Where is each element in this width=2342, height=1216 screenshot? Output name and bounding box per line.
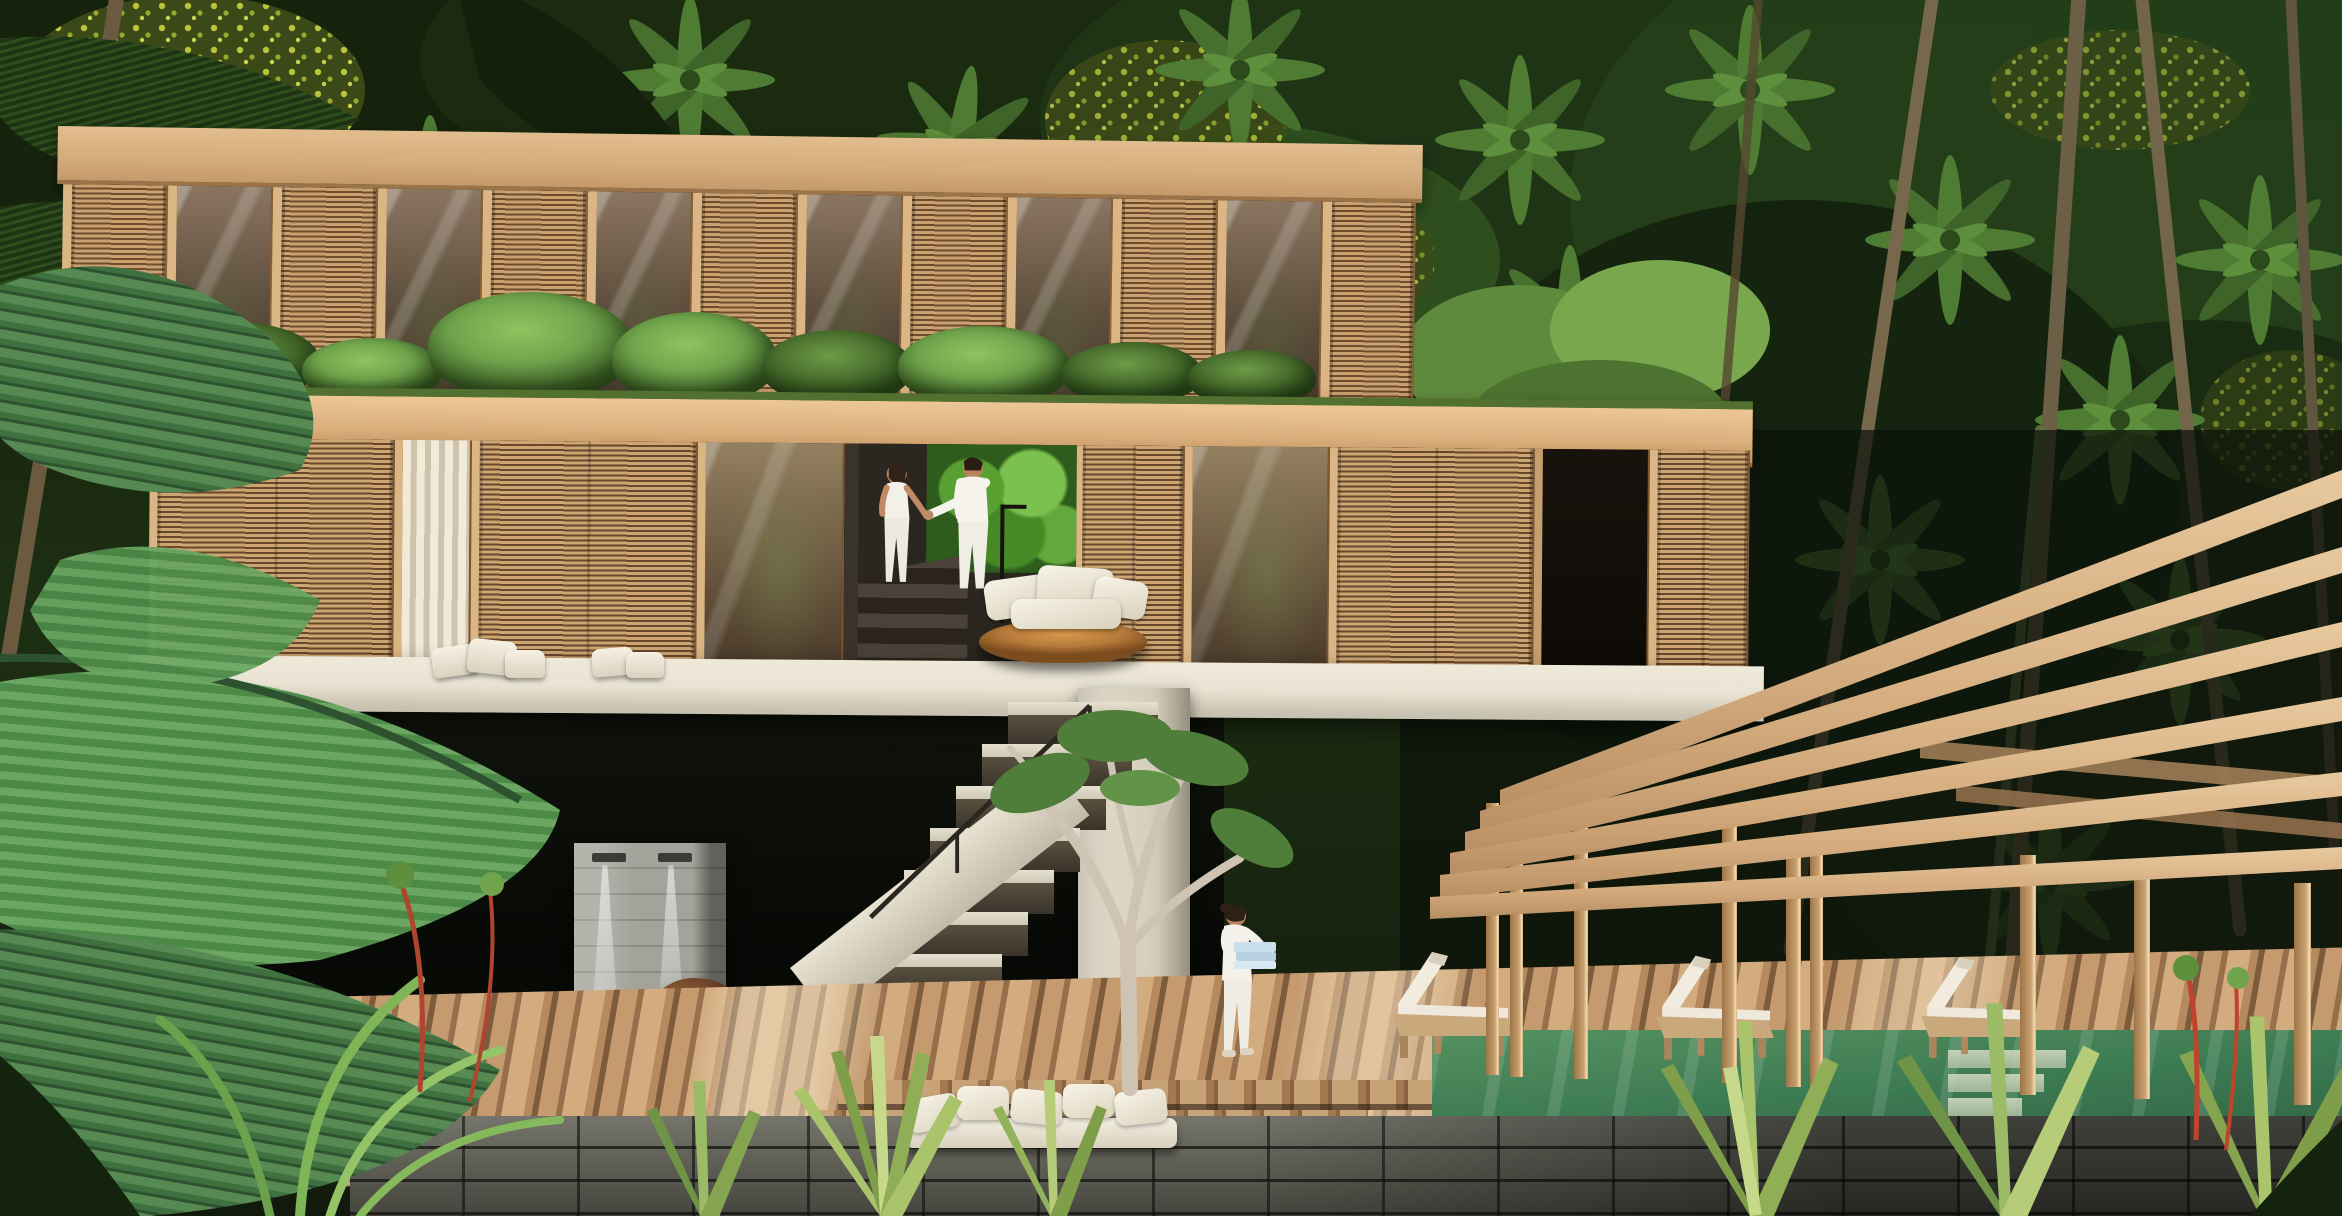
villa-rendering-scene [0,0,2342,1216]
spiky-plants-center [646,1036,1109,1216]
spiky-plants-right [1661,955,2342,1216]
foreground-foliage [0,0,2342,1216]
